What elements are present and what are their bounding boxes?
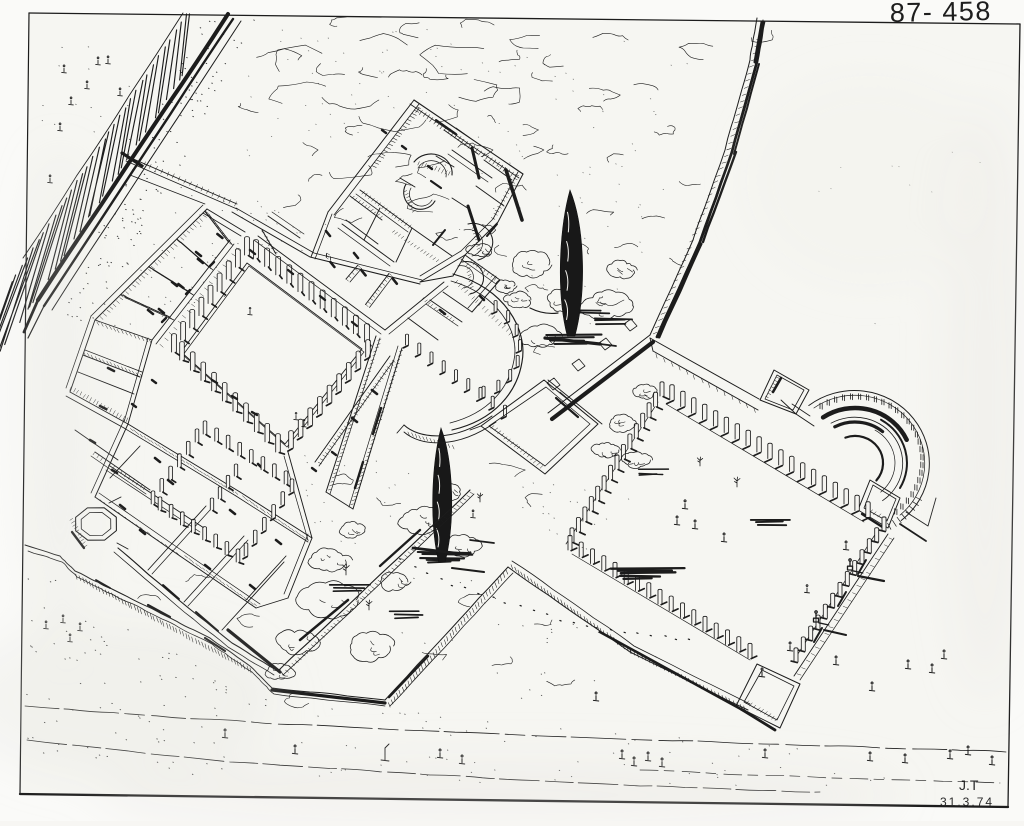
svg-text:87- 458: 87- 458 (889, 0, 992, 28)
svg-text:J.T: J.T (959, 777, 979, 793)
svg-text:31.3.74: 31.3.74 (940, 795, 994, 809)
